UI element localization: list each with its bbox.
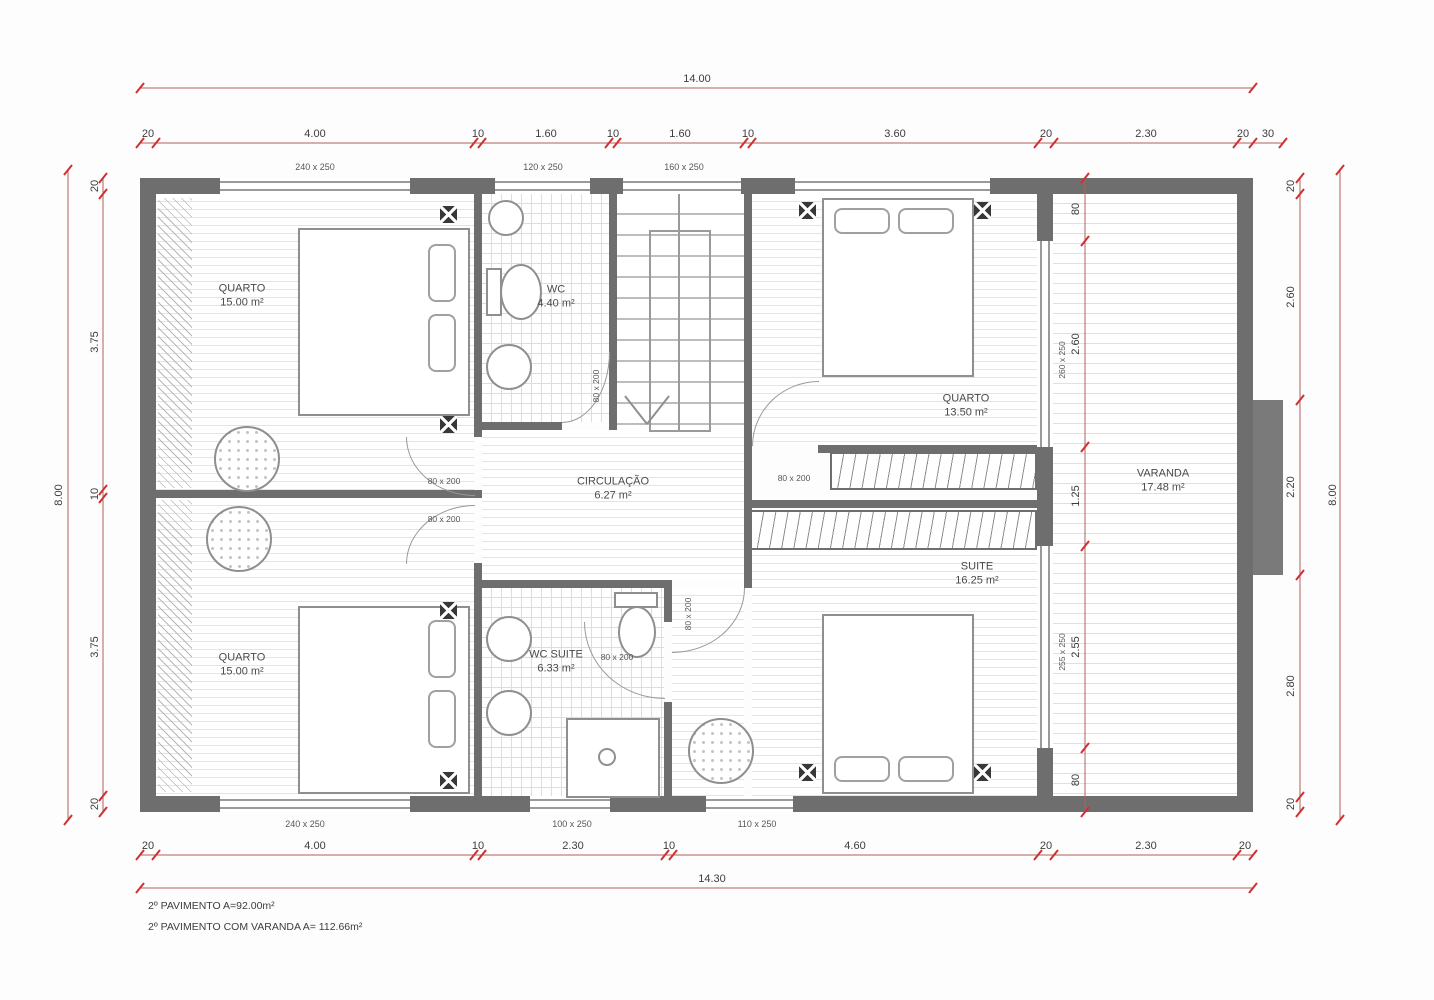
dim-right-3: 2.80 xyxy=(1285,675,1297,696)
dim-top-10: 20 xyxy=(1237,128,1249,140)
dim-left-4: 20 xyxy=(89,798,101,810)
room-area: 6.33 m² xyxy=(537,663,574,675)
dim-interior-2: 1.25 xyxy=(1070,485,1082,506)
stair-direction-arrow xyxy=(625,396,669,424)
room-label-wc-suite: WC SUITE 6.33 m² xyxy=(529,648,583,677)
door-label-suite: 80 x 200 xyxy=(683,598,693,631)
balcony-door-label-top: 260 x 250 xyxy=(1057,341,1067,378)
dim-right-2: 2.20 xyxy=(1285,476,1297,497)
dim-bottom-5: 4.60 xyxy=(844,840,865,852)
dim-top-4: 10 xyxy=(607,128,619,140)
window-label-bottom-1: 240 x 250 xyxy=(285,819,325,829)
dim-interior-0: 80 xyxy=(1070,203,1082,215)
dim-bottom-0: 20 xyxy=(142,840,154,852)
dim-bottom-4: 10 xyxy=(663,840,675,852)
door-label-wc: 80 x 200 xyxy=(591,370,601,403)
dim-top-8: 20 xyxy=(1040,128,1052,140)
room-name: WC xyxy=(547,284,565,296)
room-area: 17.48 m² xyxy=(1141,482,1184,494)
room-name: QUARTO xyxy=(219,283,266,295)
dim-top-11: 30 xyxy=(1262,128,1274,140)
room-area: 15.00 m² xyxy=(220,666,263,678)
window-label-bottom-2: 100 x 250 xyxy=(552,819,592,829)
room-name: WC SUITE xyxy=(529,649,583,661)
room-area: 13.50 m² xyxy=(944,407,987,419)
room-label-quarto-top-right: QUARTO 13.50 m² xyxy=(943,392,990,421)
room-label-circulacao: CIRCULAÇÃO 6.27 m² xyxy=(577,475,649,504)
door-label-quarto-tr: 80 x 200 xyxy=(778,473,811,483)
room-name: SUITE xyxy=(961,561,993,573)
dim-interior-1: 2.60 xyxy=(1070,333,1082,354)
room-area: 4.40 m² xyxy=(537,298,574,310)
floor-plan-sheet: 14.00 20 4.00 10 1.60 10 1.60 10 3.60 20… xyxy=(0,0,1434,1000)
dim-top-9: 2.30 xyxy=(1135,128,1156,140)
dim-bottom-1: 4.00 xyxy=(304,840,325,852)
dim-left-1: 3.75 xyxy=(89,331,101,352)
dim-right-1: 2.60 xyxy=(1285,286,1297,307)
door-label-wc-suite: 80 x 200 xyxy=(601,652,634,662)
dim-top-5: 1.60 xyxy=(669,128,690,140)
window-label-top-2: 120 x 250 xyxy=(523,162,563,172)
note-pavimento-varanda-area: 2º PAVIMENTO COM VARANDA A= 112.66m² xyxy=(148,921,362,933)
dim-top-1: 4.00 xyxy=(304,128,325,140)
window-label-top-1: 240 x 250 xyxy=(295,162,335,172)
dim-top-6: 10 xyxy=(742,128,754,140)
dim-left-3: 3.75 xyxy=(89,636,101,657)
room-area: 16.25 m² xyxy=(955,575,998,587)
dim-right-4: 20 xyxy=(1285,798,1297,810)
dim-bottom-7: 2.30 xyxy=(1135,840,1156,852)
dim-top-0: 20 xyxy=(142,128,154,140)
window-label-bottom-3: 110 x 250 xyxy=(738,819,777,829)
room-name: VARANDA xyxy=(1137,468,1189,480)
room-label-wc: WC 4.40 m² xyxy=(537,283,574,312)
dim-interior-3: 2.55 xyxy=(1070,636,1082,657)
room-label-quarto-bottom-left: QUARTO 15.00 m² xyxy=(219,651,266,680)
room-area: 6.27 m² xyxy=(594,490,631,502)
window-label-top-3: 160 x 250 xyxy=(664,162,704,172)
balcony-door-label-bottom: 255 x 250 xyxy=(1057,633,1067,670)
dim-interior-4: 80 xyxy=(1070,774,1082,786)
dim-top-total: 14.00 xyxy=(683,73,711,85)
dim-top-2: 10 xyxy=(472,128,484,140)
room-label-varanda: VARANDA 17.48 m² xyxy=(1137,467,1189,496)
room-name: CIRCULAÇÃO xyxy=(577,476,649,488)
dim-right-0: 20 xyxy=(1285,180,1297,192)
room-label-quarto-top-left: QUARTO 15.00 m² xyxy=(219,282,266,311)
dim-bottom-8: 20 xyxy=(1239,840,1251,852)
dim-bottom-total: 14.30 xyxy=(698,873,726,885)
room-label-suite: SUITE 16.25 m² xyxy=(955,560,998,589)
dim-left-total: 8.00 xyxy=(53,484,65,505)
note-pavimento-area: 2º PAVIMENTO A=92.00m² xyxy=(148,900,275,912)
dim-top-7: 3.60 xyxy=(884,128,905,140)
dim-top-3: 1.60 xyxy=(535,128,556,140)
dim-left-2: 10 xyxy=(89,488,101,500)
dim-bottom-6: 20 xyxy=(1040,840,1052,852)
room-name: QUARTO xyxy=(943,393,990,405)
room-area: 15.00 m² xyxy=(220,297,263,309)
dimension-lines-overlay xyxy=(0,0,1434,1000)
dim-bottom-3: 2.30 xyxy=(562,840,583,852)
dim-right-total: 8.00 xyxy=(1327,484,1339,505)
door-label-quarto-tl: 80 x 200 xyxy=(428,476,461,486)
dim-bottom-2: 10 xyxy=(472,840,484,852)
dim-left-0: 20 xyxy=(89,180,101,192)
door-label-quarto-bl: 80 x 200 xyxy=(428,514,461,524)
room-name: QUARTO xyxy=(219,652,266,664)
